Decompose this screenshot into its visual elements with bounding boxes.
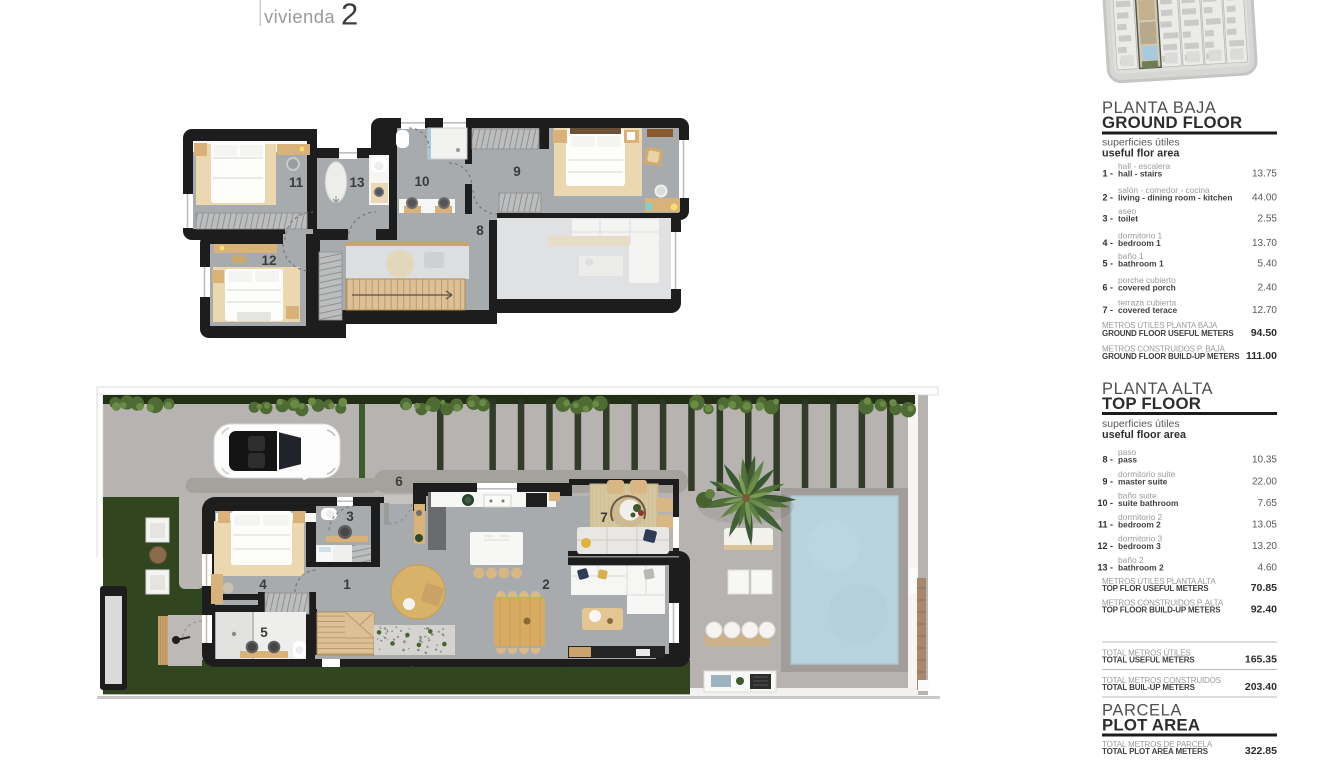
svg-text:7 -: 7 - bbox=[1102, 305, 1113, 315]
svg-text:1 -: 1 - bbox=[1102, 169, 1113, 179]
svg-text:203.40: 203.40 bbox=[1245, 681, 1277, 693]
svg-text:10 -: 10 - bbox=[1097, 498, 1113, 508]
svg-text:12 -: 12 - bbox=[1097, 541, 1113, 551]
svg-text:master suite: master suite bbox=[1118, 477, 1168, 487]
svg-text:PLOT AREA: PLOT AREA bbox=[1102, 716, 1200, 735]
svg-text:10.35: 10.35 bbox=[1252, 455, 1277, 466]
svg-text:4.60: 4.60 bbox=[1258, 563, 1278, 574]
svg-text:22.00: 22.00 bbox=[1252, 477, 1277, 488]
svg-text:TOTAL USEFUL METERS: TOTAL USEFUL METERS bbox=[1102, 656, 1195, 665]
svg-text:5 -: 5 - bbox=[1102, 259, 1113, 269]
svg-text:13.05: 13.05 bbox=[1252, 520, 1277, 531]
svg-text:2.40: 2.40 bbox=[1258, 283, 1278, 294]
svg-text:6 -: 6 - bbox=[1102, 283, 1113, 293]
svg-text:useful floor area: useful floor area bbox=[1102, 429, 1187, 441]
svg-text:2.55: 2.55 bbox=[1258, 213, 1278, 224]
svg-text:5: 5 bbox=[260, 625, 268, 640]
svg-text:pass: pass bbox=[1118, 455, 1137, 465]
svg-text:11 -: 11 - bbox=[1098, 520, 1113, 530]
svg-text:94.50: 94.50 bbox=[1251, 327, 1277, 339]
svg-text:2: 2 bbox=[542, 577, 550, 592]
svg-text:hall - stairs: hall - stairs bbox=[1118, 169, 1163, 179]
svg-text:13.70: 13.70 bbox=[1252, 238, 1277, 249]
svg-text:111.00: 111.00 bbox=[1246, 350, 1277, 362]
svg-text:bedroom 3: bedroom 3 bbox=[1118, 541, 1161, 551]
svg-text:10: 10 bbox=[414, 174, 429, 189]
svg-text:9 -: 9 - bbox=[1102, 477, 1113, 487]
svg-text:GROUND FLOOR BUILD-UP METERS: GROUND FLOOR BUILD-UP METERS bbox=[1102, 352, 1240, 361]
svg-text:4 -: 4 - bbox=[1102, 238, 1113, 248]
svg-text:GROUND FLOOR: GROUND FLOOR bbox=[1102, 113, 1242, 132]
svg-text:useful flor area: useful flor area bbox=[1102, 148, 1180, 160]
svg-text:bedroom 1: bedroom 1 bbox=[1118, 238, 1161, 248]
svg-text:living - dining room - kitchen: living - dining room - kitchen bbox=[1118, 192, 1232, 202]
svg-text:vivienda: vivienda bbox=[264, 6, 335, 27]
svg-text:bathroom 2: bathroom 2 bbox=[1118, 563, 1164, 573]
svg-text:322.85: 322.85 bbox=[1245, 745, 1277, 756]
svg-text:13.75: 13.75 bbox=[1252, 169, 1277, 180]
svg-text:12.70: 12.70 bbox=[1252, 305, 1277, 316]
svg-text:7: 7 bbox=[600, 510, 608, 525]
svg-text:7.65: 7.65 bbox=[1258, 498, 1278, 509]
svg-text:3 -: 3 - bbox=[1102, 213, 1113, 223]
svg-text:4: 4 bbox=[259, 577, 267, 592]
svg-text:5.40: 5.40 bbox=[1258, 259, 1278, 270]
svg-text:2 -: 2 - bbox=[1102, 192, 1113, 202]
svg-text:2: 2 bbox=[341, 0, 358, 32]
svg-text:13.20: 13.20 bbox=[1252, 541, 1277, 552]
svg-text:13 -: 13 - bbox=[1097, 563, 1113, 573]
svg-text:3: 3 bbox=[346, 509, 354, 524]
svg-text:covered porch: covered porch bbox=[1118, 283, 1176, 293]
svg-text:11: 11 bbox=[289, 175, 304, 190]
svg-text:1: 1 bbox=[343, 577, 351, 592]
svg-text:8 -: 8 - bbox=[1102, 455, 1113, 465]
svg-text:bedroom 2: bedroom 2 bbox=[1118, 520, 1161, 530]
svg-text:TOTAL BUIL-UP METERS: TOTAL BUIL-UP METERS bbox=[1102, 683, 1196, 692]
svg-text:TOP FLOOR BUILD-UP METERS: TOP FLOOR BUILD-UP METERS bbox=[1102, 606, 1221, 615]
svg-text:suite bathroom: suite bathroom bbox=[1118, 498, 1179, 508]
svg-text:TOTAL PLOT AREA METERS: TOTAL PLOT AREA METERS bbox=[1102, 747, 1209, 756]
svg-text:covered terace: covered terace bbox=[1118, 305, 1177, 315]
svg-text:8: 8 bbox=[476, 223, 484, 238]
svg-text:6: 6 bbox=[395, 474, 403, 489]
svg-text:9: 9 bbox=[513, 164, 521, 179]
svg-text:44.00: 44.00 bbox=[1252, 192, 1277, 203]
svg-text:GROUND FLOOR USEFUL METERS: GROUND FLOOR USEFUL METERS bbox=[1102, 329, 1234, 338]
svg-text:toilet: toilet bbox=[1118, 213, 1138, 223]
svg-text:12: 12 bbox=[261, 253, 276, 268]
svg-text:TOP FLOOR: TOP FLOOR bbox=[1102, 394, 1201, 413]
svg-text:13: 13 bbox=[349, 175, 365, 190]
svg-text:TOP FLOR USEFUL METERS: TOP FLOR USEFUL METERS bbox=[1102, 584, 1209, 593]
svg-text:92.40: 92.40 bbox=[1251, 604, 1277, 616]
svg-text:165.35: 165.35 bbox=[1245, 654, 1277, 666]
svg-text:70.85: 70.85 bbox=[1251, 582, 1277, 594]
svg-text:bathroom 1: bathroom 1 bbox=[1118, 259, 1164, 269]
